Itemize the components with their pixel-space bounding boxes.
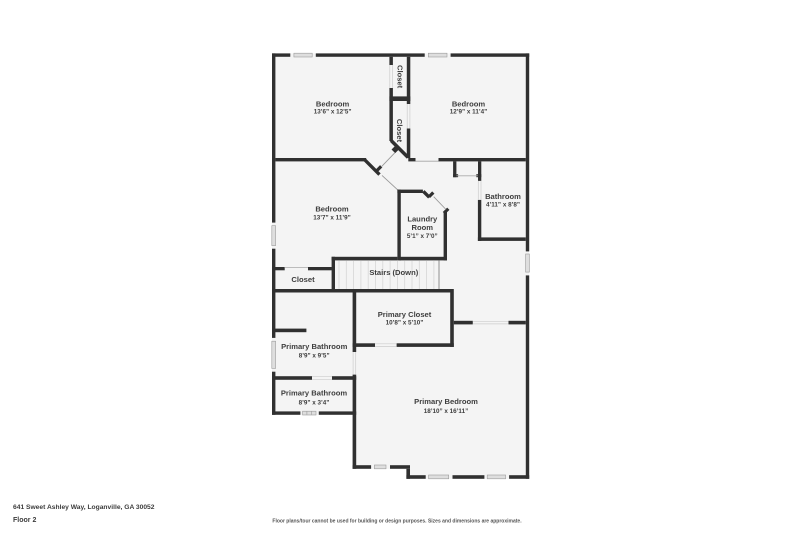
svg-text:Bedroom: Bedroom: [315, 204, 349, 213]
svg-text:641 Sweet Ashley Way, Loganvil: 641 Sweet Ashley Way, Loganville, GA 300…: [13, 504, 155, 511]
svg-text:Primary Bathroom: Primary Bathroom: [281, 389, 348, 398]
svg-text:Closet: Closet: [396, 65, 405, 89]
svg-text:4’11” x 8’8”: 4’11” x 8’8”: [486, 201, 520, 208]
svg-text:Primary Bathroom: Primary Bathroom: [281, 342, 348, 351]
svg-text:8’9” x 9’5”: 8’9” x 9’5”: [299, 353, 330, 360]
svg-text:5’1” x 7’0”: 5’1” x 7’0”: [407, 233, 438, 240]
svg-text:Primary Closet: Primary Closet: [378, 310, 432, 319]
svg-text:Closet: Closet: [291, 275, 315, 284]
svg-text:13’7” x 11’9”: 13’7” x 11’9”: [313, 214, 350, 221]
svg-text:Laundry: Laundry: [407, 215, 438, 224]
svg-text:Room: Room: [412, 223, 434, 232]
svg-text:Bedroom: Bedroom: [316, 100, 350, 109]
svg-text:Floor plans/tour cannot be use: Floor plans/tour cannot be used for buil…: [272, 519, 522, 525]
svg-text:12’9” x 11’4”: 12’9” x 11’4”: [450, 109, 487, 116]
svg-text:13’6” x 12’5”: 13’6” x 12’5”: [314, 109, 352, 116]
svg-text:18’10” x 16’11”: 18’10” x 16’11”: [424, 408, 468, 415]
svg-text:Primary Bedroom: Primary Bedroom: [414, 397, 478, 406]
svg-text:Closet: Closet: [395, 119, 404, 143]
svg-text:8’9” x 3’4”: 8’9” x 3’4”: [299, 400, 330, 407]
svg-text:Stairs (Down): Stairs (Down): [369, 268, 418, 277]
svg-text:Bathroom: Bathroom: [485, 192, 521, 201]
svg-text:10’8” x 5’10”: 10’8” x 5’10”: [386, 320, 424, 327]
svg-text:Floor 2: Floor 2: [13, 517, 36, 524]
svg-text:Bedroom: Bedroom: [452, 100, 486, 109]
